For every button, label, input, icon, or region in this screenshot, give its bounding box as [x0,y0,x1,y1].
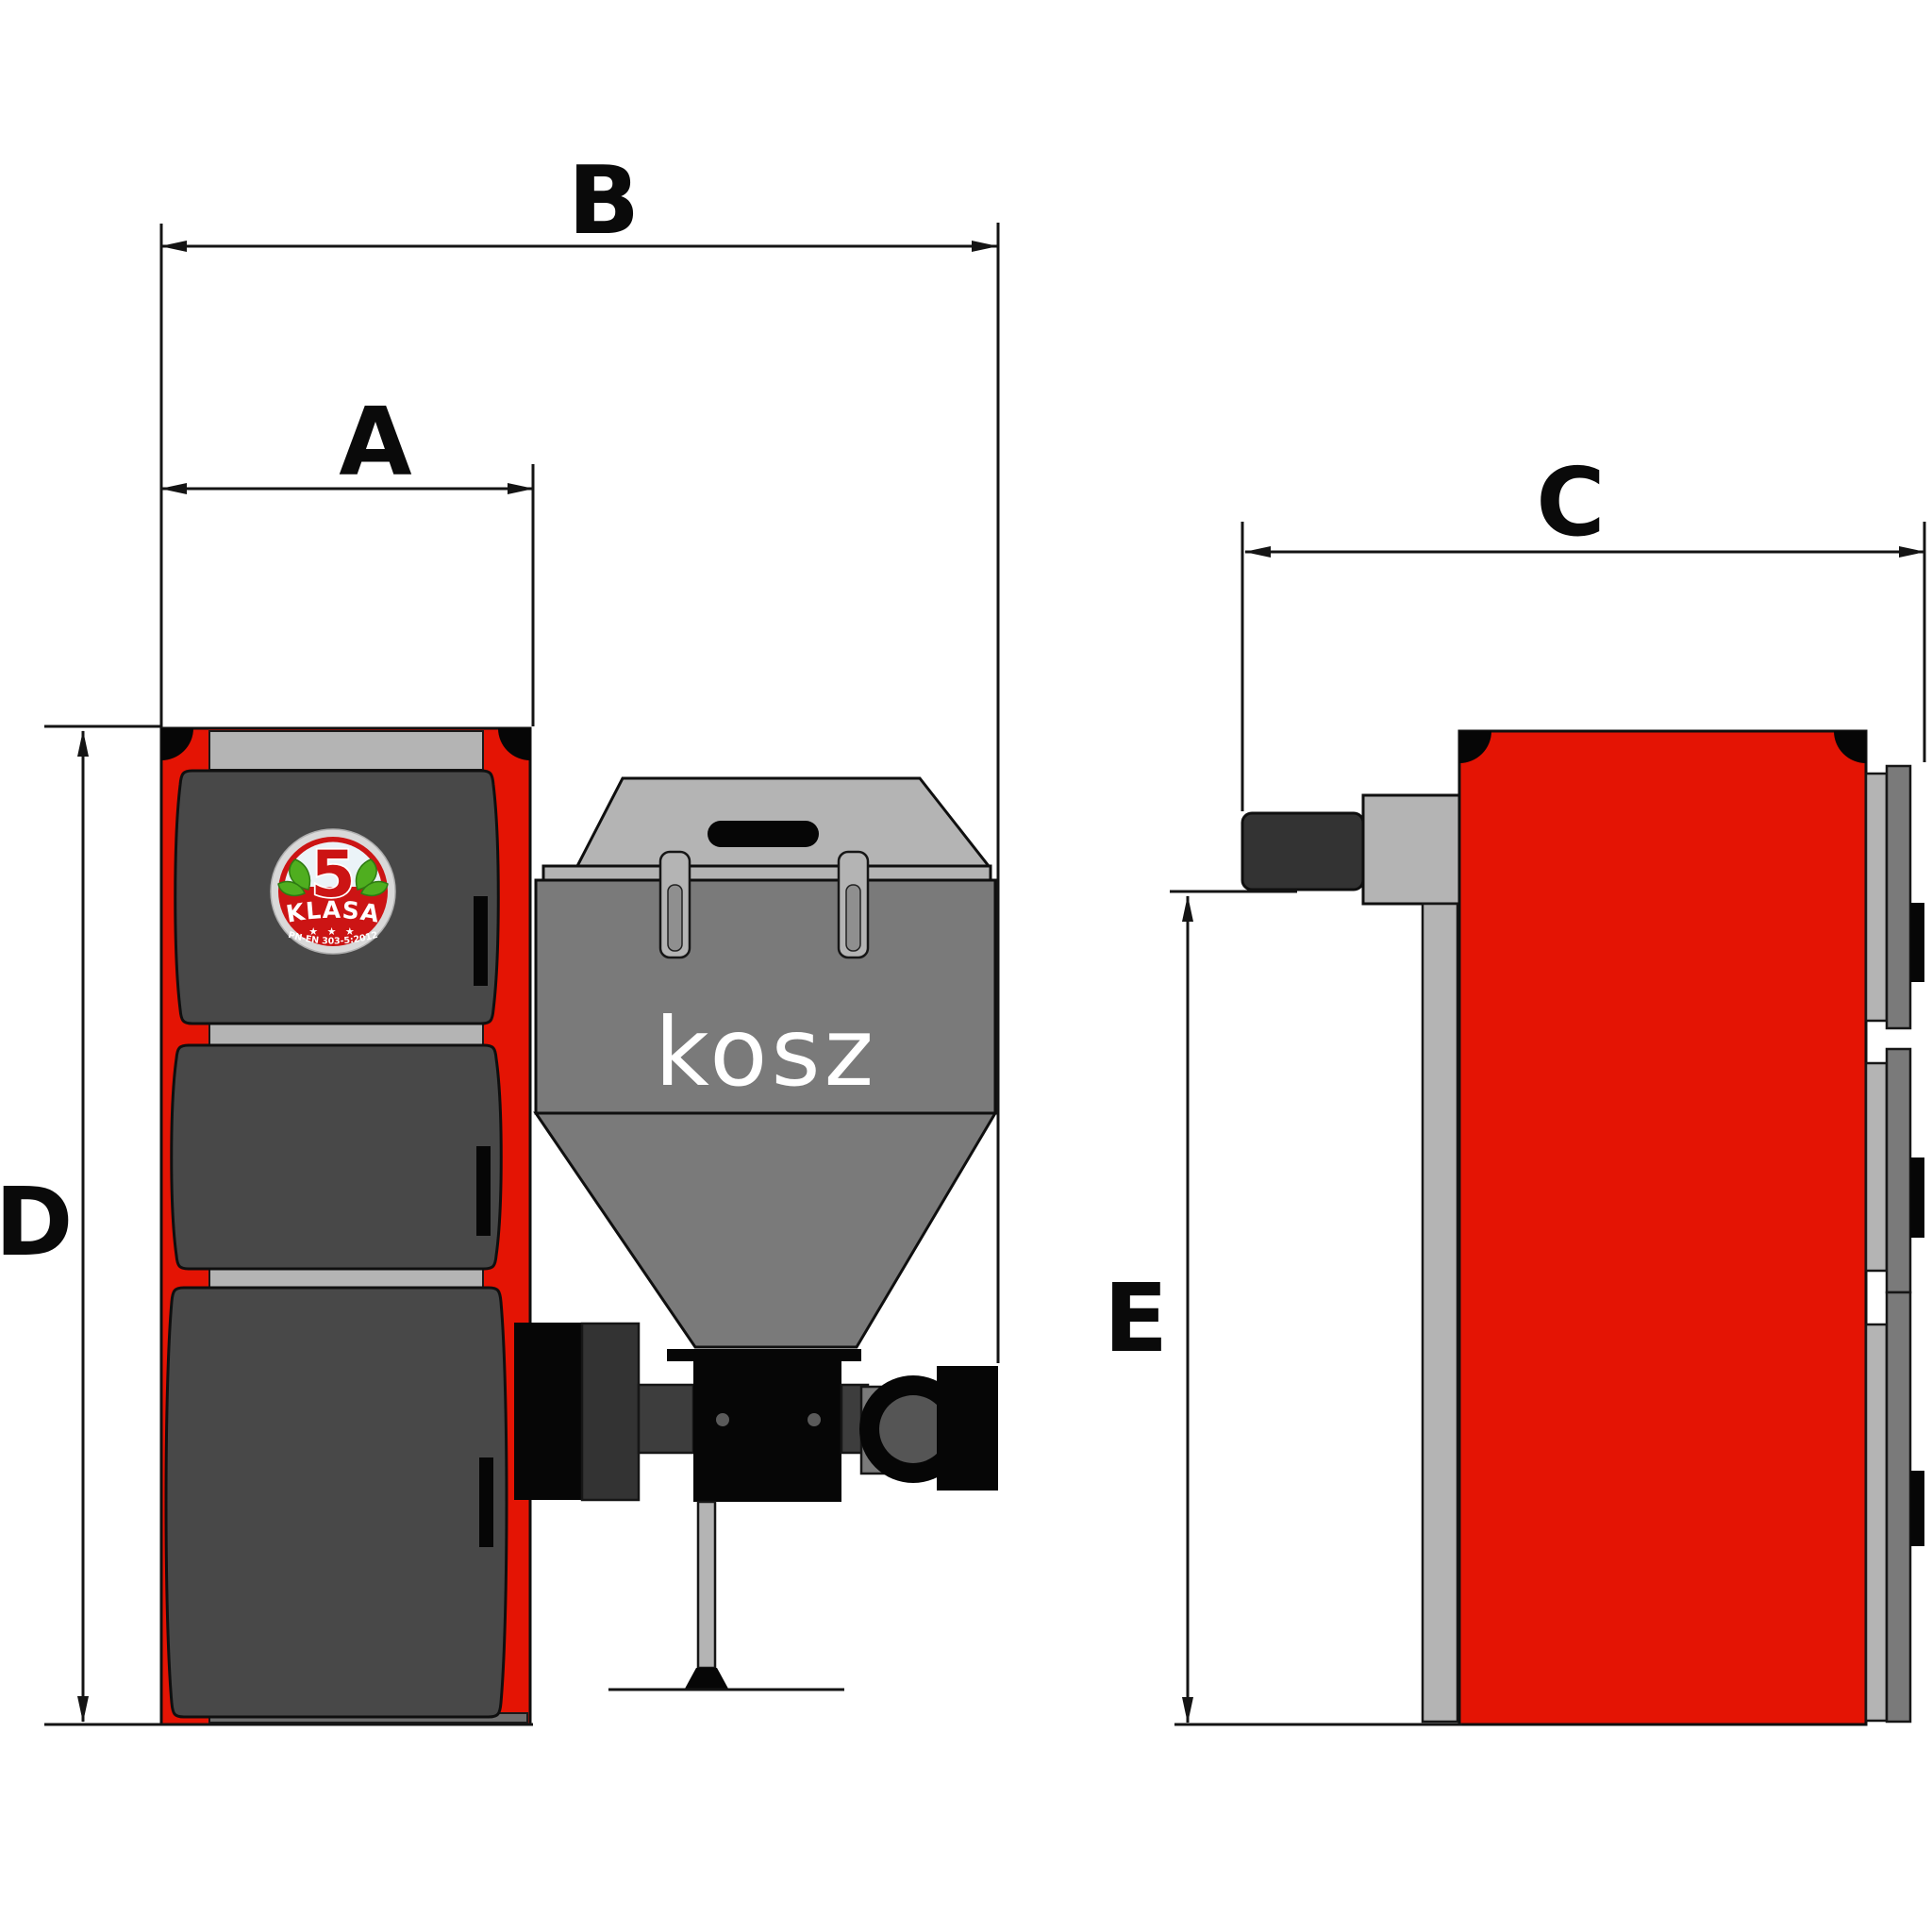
front-door-middle [172,1045,502,1269]
boiler-dimension-diagram: 5 KLASA ★ ★ ★ PN-EN 303-5:2012 [0,0,1932,1932]
hopper-lid-handle [708,821,819,847]
feeder-leg [698,1502,715,1668]
dimension-label-c: C [1536,447,1605,558]
side-door-edge-bottom [1866,1292,1924,1722]
side-view [1242,731,1924,1724]
class-5-badge: 5 KLASA ★ ★ ★ PN-EN 303-5:2012 [271,829,395,954]
hopper-clip-right [839,852,868,958]
front-door-separator-upper [209,1022,483,1046]
feeder-assembly [514,1323,998,1690]
hopper-clip-left [660,852,690,958]
feeder-motor-inner [582,1324,639,1500]
hopper-funnel [536,1113,995,1347]
feeder-bolt-left [716,1413,729,1426]
front-view: 5 KLASA ★ ★ ★ PN-EN 303-5:2012 [161,728,530,1724]
dimension-label-e: E [1104,1263,1168,1374]
feeder-bolt-right [808,1413,821,1426]
side-door-edge-top [1866,766,1924,1028]
front-door-handle-middle [476,1146,491,1236]
badge-name: KLASA [284,896,382,928]
front-door-handle-top [474,896,488,986]
side-boiler-body [1459,731,1866,1724]
feeder-gearbox [693,1361,841,1502]
front-top-trim [209,731,483,770]
hopper-lid-collar [543,866,991,880]
front-door-bottom [166,1288,507,1717]
feeder-motor-outer [514,1323,582,1500]
dimension-label-b: B [568,145,640,256]
flue-outlet [1242,813,1363,890]
hopper-label: kosz [655,997,877,1108]
flue-connector [1363,795,1459,904]
feeder-foot [685,1668,728,1689]
fuel-hopper: kosz [536,778,995,1347]
dimension-label-d: D [0,1167,74,1277]
fan-motor-box [937,1366,998,1491]
dimension-label-a: A [339,387,411,497]
auger-duct-left [639,1385,693,1453]
side-door-edge-middle [1866,1049,1924,1292]
front-door-handle-bottom [479,1457,493,1547]
side-trim-strip [1423,904,1457,1722]
feeder-top-plate [667,1349,861,1361]
